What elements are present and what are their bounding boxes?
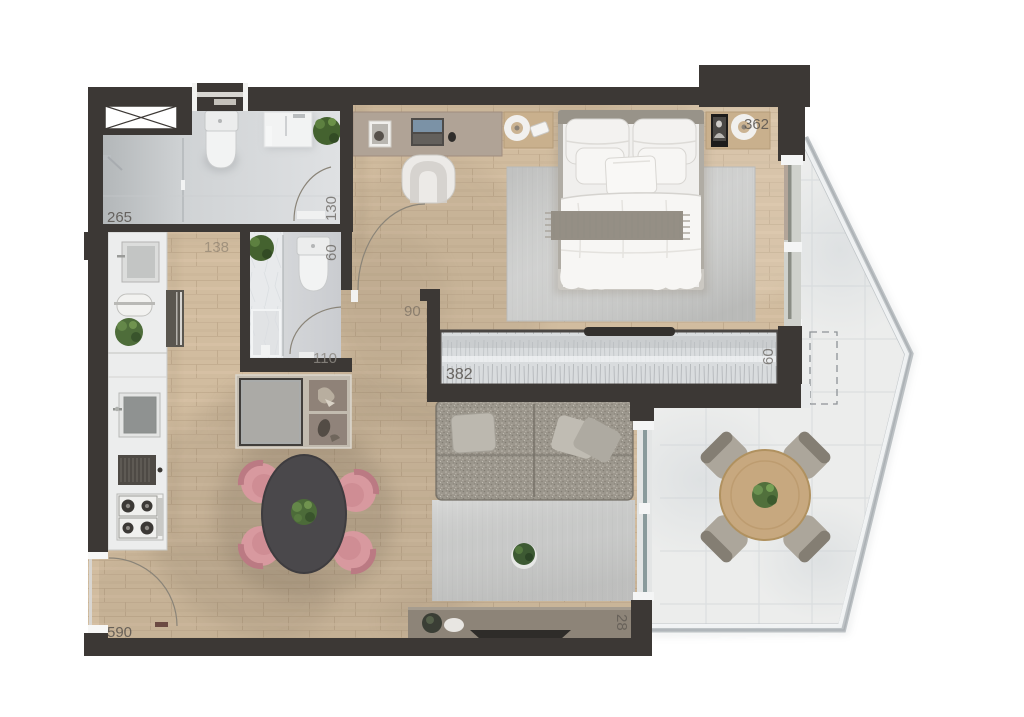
svg-text:265: 265 xyxy=(107,209,132,226)
svg-text:110: 110 xyxy=(313,350,337,367)
svg-text:138: 138 xyxy=(204,239,229,256)
svg-text:362: 362 xyxy=(744,116,769,133)
svg-text:90: 90 xyxy=(404,303,421,320)
svg-text:382: 382 xyxy=(446,366,473,383)
svg-text:130: 130 xyxy=(323,196,340,221)
svg-text:28: 28 xyxy=(613,614,630,631)
svg-text:60: 60 xyxy=(760,348,777,365)
svg-text:590: 590 xyxy=(107,624,132,641)
svg-text:60: 60 xyxy=(323,244,340,261)
